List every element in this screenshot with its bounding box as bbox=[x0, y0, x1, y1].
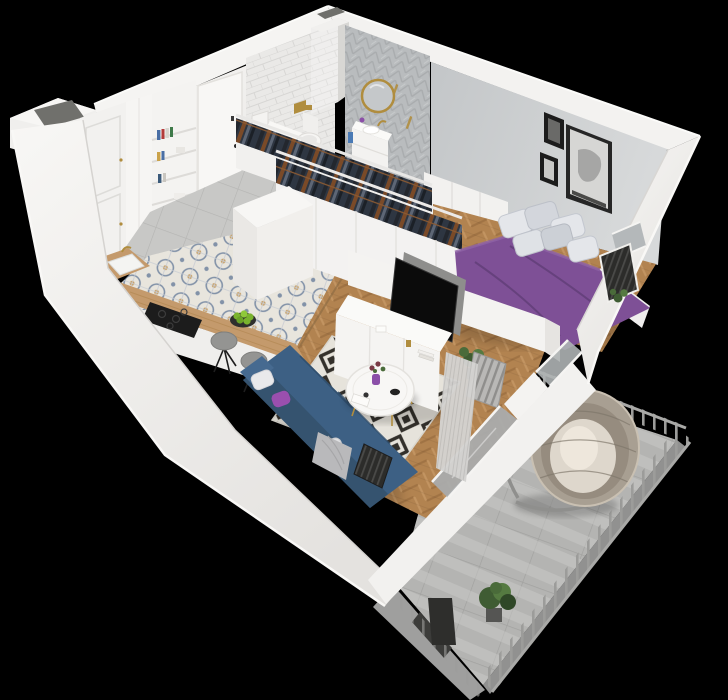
purple-bottle bbox=[360, 118, 365, 123]
black-bowl bbox=[390, 389, 400, 395]
gold-flush-plate bbox=[304, 105, 312, 110]
media-box bbox=[376, 326, 386, 332]
apartment-3d-render bbox=[0, 0, 728, 700]
table-top bbox=[346, 364, 414, 416]
render-canvas bbox=[0, 0, 728, 700]
door-lock bbox=[231, 116, 234, 121]
balcony-dark-planter bbox=[428, 598, 456, 645]
round-gold-mirror bbox=[362, 80, 394, 112]
purple-vase bbox=[372, 374, 380, 385]
bedroom-window-radiator bbox=[600, 244, 638, 302]
blue-towel bbox=[348, 132, 353, 143]
gold-cup bbox=[406, 340, 411, 347]
vanity-sink bbox=[363, 126, 379, 134]
